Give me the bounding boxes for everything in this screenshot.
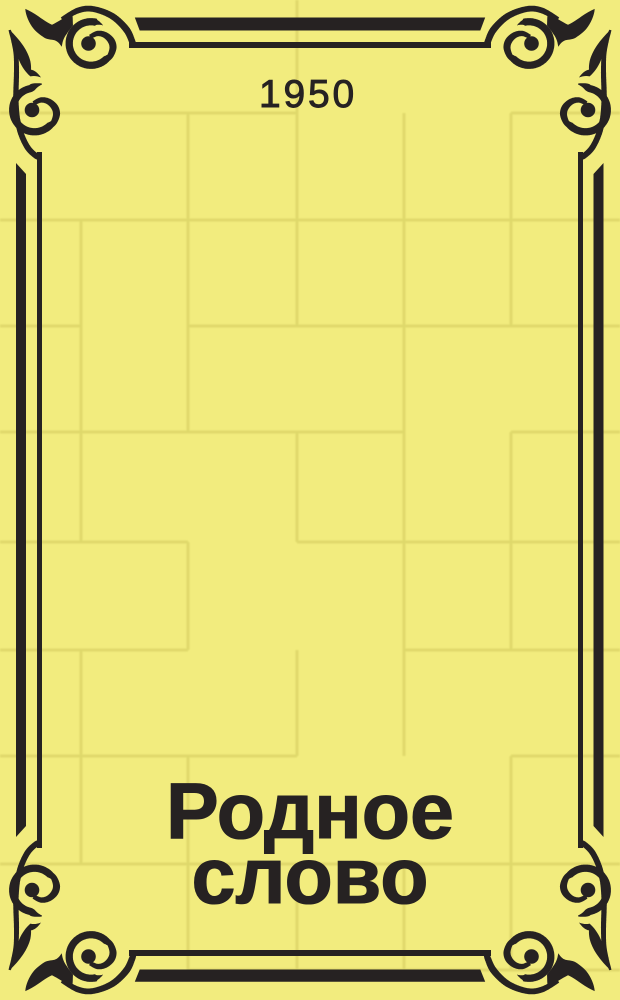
svg-text:слово: слово <box>191 831 428 920</box>
svg-text:1950: 1950 <box>259 73 357 116</box>
